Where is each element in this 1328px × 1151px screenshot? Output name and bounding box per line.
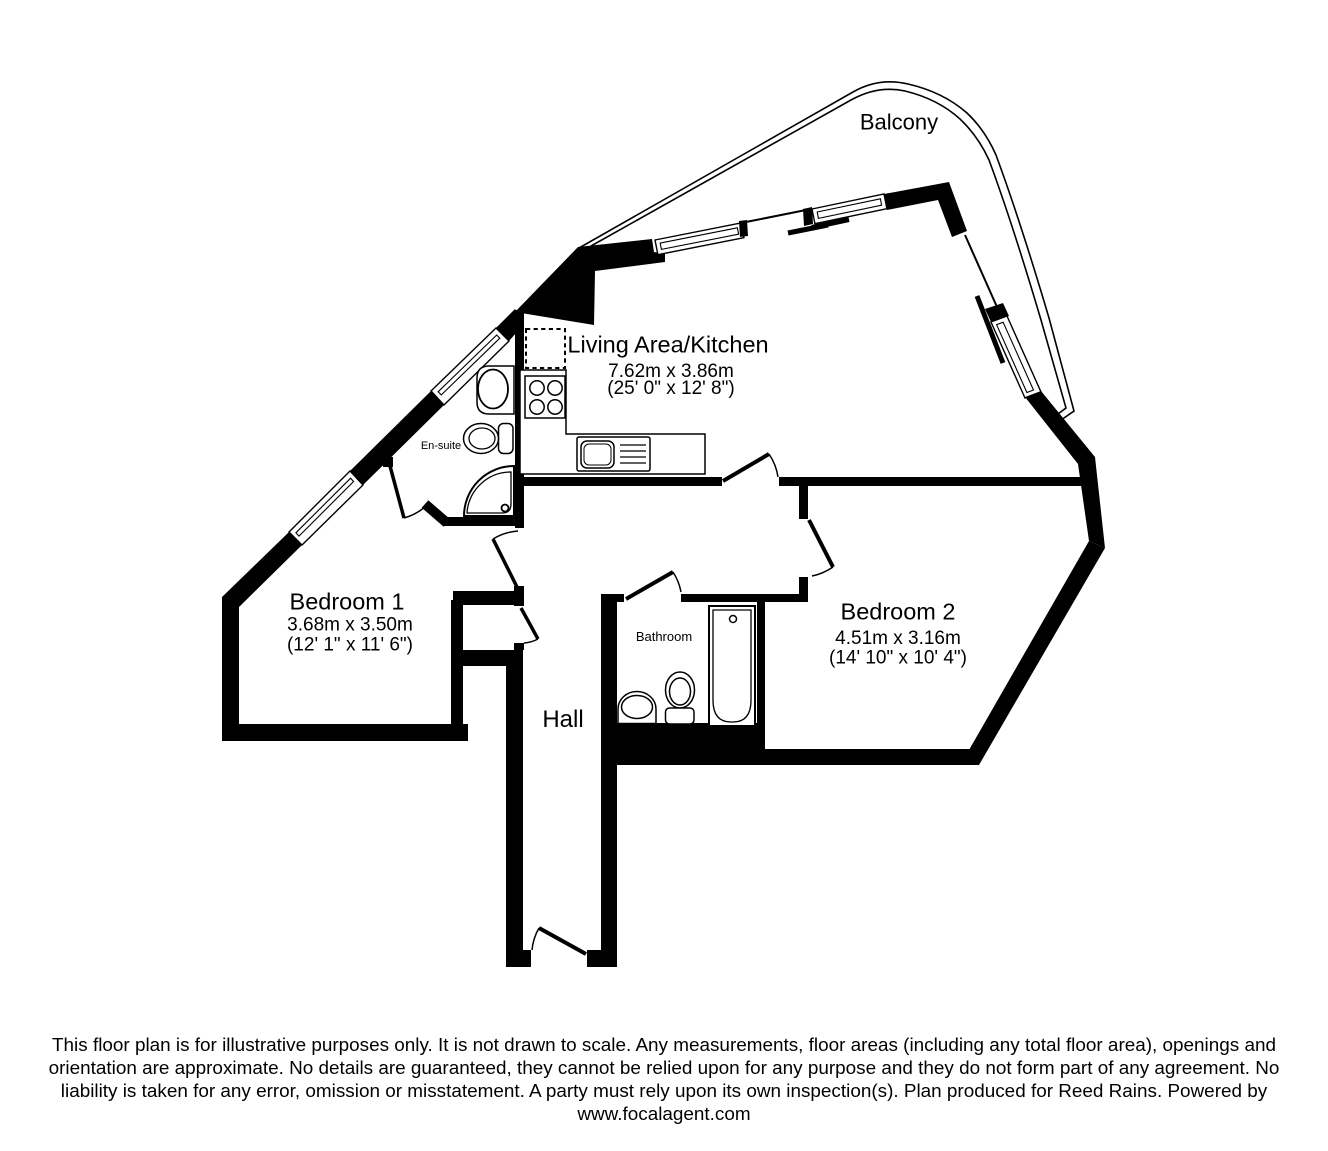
svg-text:Bedroom 1: Bedroom 1 — [290, 589, 405, 615]
svg-text:Balcony: Balcony — [860, 110, 938, 135]
svg-text:3.68m x 3.50m: 3.68m x 3.50m — [287, 615, 413, 636]
svg-text:(14' 10" x 10' 4"): (14' 10" x 10' 4") — [829, 648, 967, 669]
svg-text:En-suite: En-suite — [421, 440, 461, 452]
svg-text:Bedroom 2: Bedroom 2 — [841, 599, 956, 625]
svg-text:(12' 1" x 11' 6"): (12' 1" x 11' 6") — [287, 635, 413, 656]
svg-text:Bathroom: Bathroom — [636, 629, 692, 644]
svg-text:Hall: Hall — [542, 706, 583, 733]
svg-text:(25' 0" x 12' 8"): (25' 0" x 12' 8") — [607, 378, 734, 399]
svg-text:4.51m x 3.16m: 4.51m x 3.16m — [835, 628, 961, 649]
svg-text:Living Area/Kitchen: Living Area/Kitchen — [567, 332, 768, 358]
